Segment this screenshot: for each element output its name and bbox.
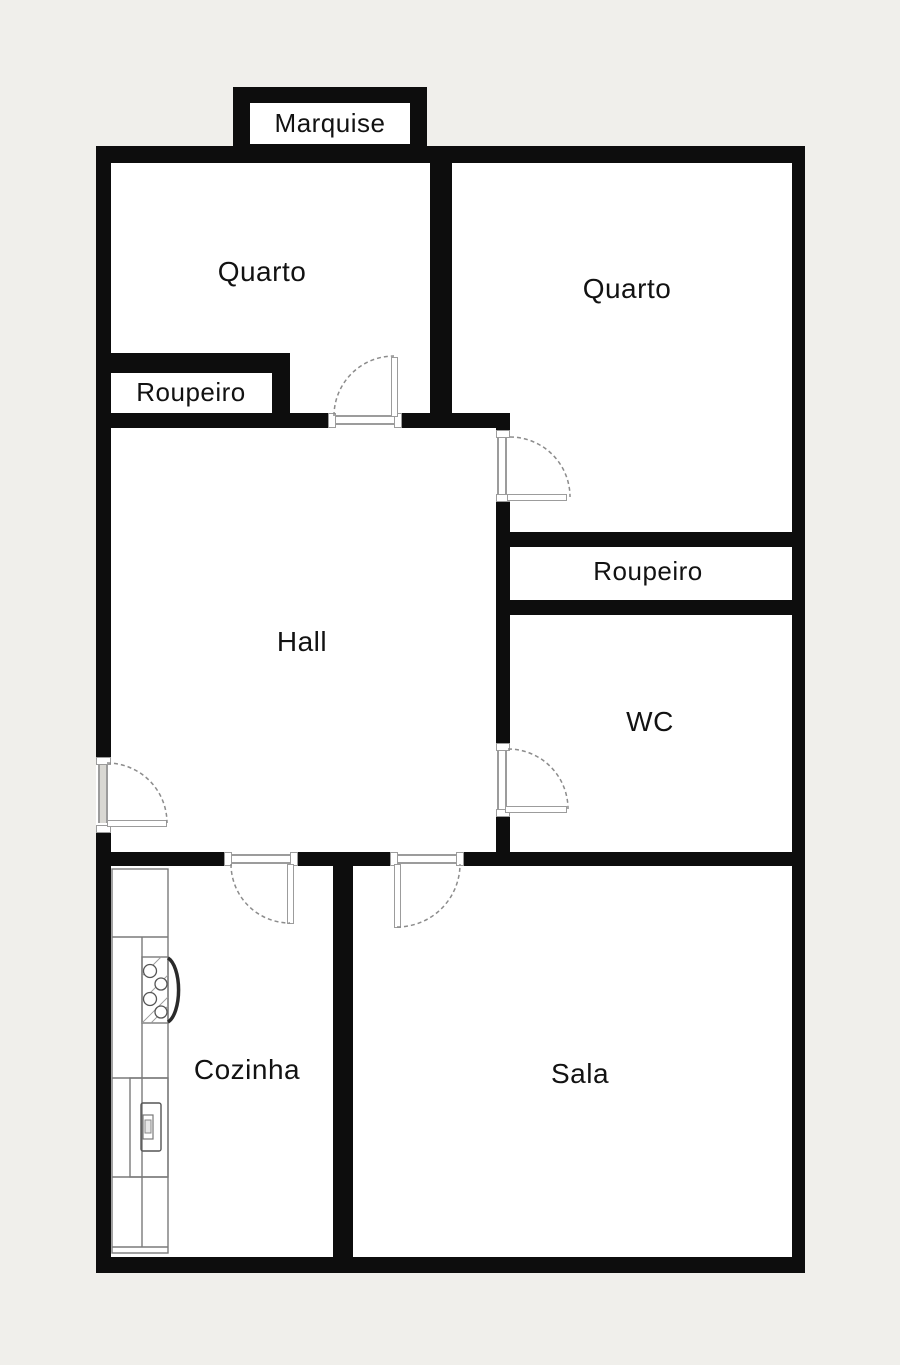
door-jamb bbox=[328, 413, 336, 428]
door-leaf-cozinha bbox=[287, 864, 294, 924]
quarto-left-floor-lower bbox=[290, 353, 430, 413]
floor-plan: Marquise Quarto Quarto Roupeiro Hall Rou… bbox=[0, 0, 900, 1365]
door-jamb bbox=[496, 743, 510, 751]
door-leaf-entrance bbox=[107, 820, 167, 827]
room-label-cozinha: Cozinha bbox=[194, 1056, 300, 1084]
door-sill-sala bbox=[398, 854, 456, 864]
room-label-marquise: Marquise bbox=[275, 110, 386, 136]
door-leaf-quarto-right bbox=[507, 494, 567, 501]
door-sill-quarto-right bbox=[497, 438, 507, 494]
door-jamb bbox=[96, 757, 111, 765]
room-label-quarto-right: Quarto bbox=[583, 275, 672, 303]
quarto-right-floor-lower bbox=[510, 413, 792, 532]
door-jamb bbox=[224, 852, 232, 866]
room-label-hall: Hall bbox=[277, 628, 327, 656]
door-leaf-wc bbox=[505, 806, 567, 813]
door-leaf-quarto-left bbox=[391, 357, 398, 417]
room-label-roupeiro-right: Roupeiro bbox=[593, 558, 703, 584]
door-leaf-sala bbox=[394, 864, 401, 928]
door-sill-cozinha bbox=[232, 854, 290, 864]
room-label-wc: WC bbox=[626, 708, 674, 736]
door-jamb bbox=[456, 852, 464, 866]
door-sill-entrance bbox=[98, 765, 108, 823]
room-label-quarto-left: Quarto bbox=[218, 258, 307, 286]
room-label-roupeiro-left: Roupeiro bbox=[136, 379, 246, 405]
room-label-sala: Sala bbox=[551, 1060, 609, 1088]
door-sill-wc bbox=[497, 751, 507, 809]
door-sill-quarto-left bbox=[336, 415, 394, 425]
door-jamb bbox=[496, 430, 510, 438]
